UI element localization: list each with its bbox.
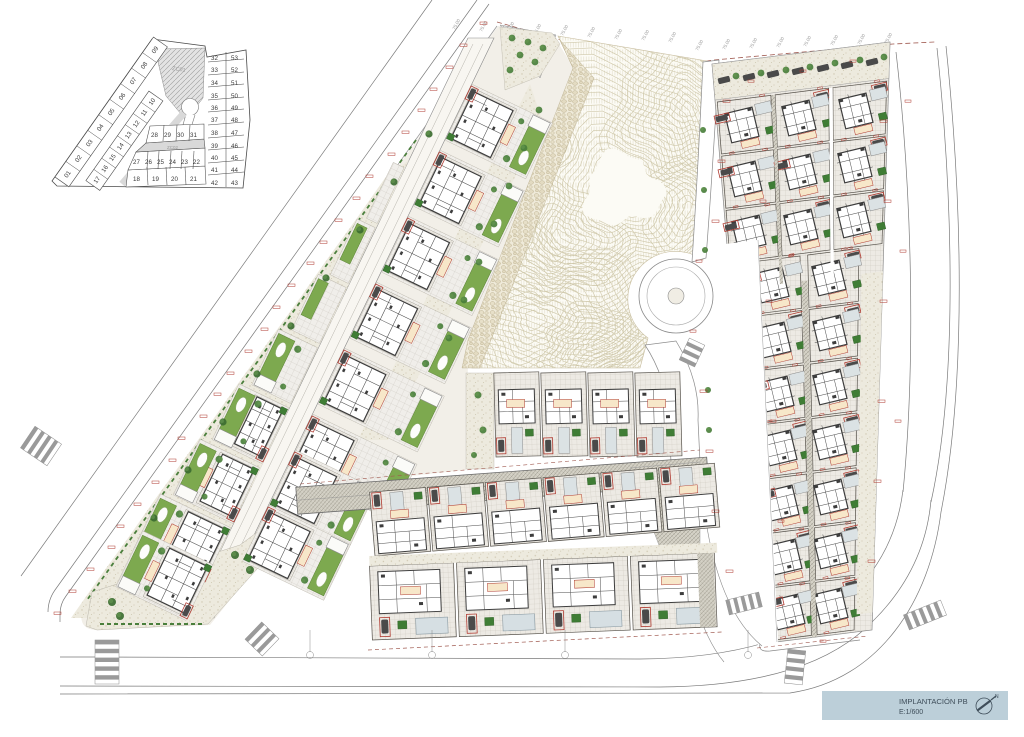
svg-text:ZC02: ZC02 — [167, 145, 179, 150]
svg-text:26: 26 — [145, 159, 152, 166]
svg-text:19: 19 — [152, 176, 159, 183]
svg-text:20: 20 — [171, 176, 178, 183]
svg-text:22: 22 — [193, 159, 200, 166]
svg-text:50: 50 — [231, 93, 238, 100]
svg-text:52: 52 — [231, 67, 238, 74]
svg-text:25: 25 — [157, 159, 164, 166]
svg-text:39: 39 — [211, 143, 218, 150]
svg-text:37: 37 — [211, 117, 218, 124]
svg-text:21: 21 — [190, 176, 197, 183]
svg-text:27: 27 — [133, 159, 140, 166]
svg-text:29: 29 — [164, 132, 171, 139]
svg-text:36: 36 — [211, 105, 218, 112]
svg-text:47: 47 — [231, 130, 238, 137]
svg-text:45: 45 — [231, 155, 238, 162]
svg-text:18: 18 — [133, 176, 140, 183]
svg-text:23: 23 — [181, 159, 188, 166]
svg-text:IMPLANTACIÓN PB: IMPLANTACIÓN PB — [899, 697, 968, 706]
svg-text:51: 51 — [231, 80, 238, 87]
svg-text:43: 43 — [231, 180, 238, 187]
svg-text:34: 34 — [211, 80, 218, 87]
svg-text:28: 28 — [151, 132, 158, 139]
svg-text:53: 53 — [231, 55, 238, 62]
svg-text:E:1/600: E:1/600 — [899, 709, 923, 716]
svg-text:41: 41 — [211, 167, 218, 174]
svg-text:49: 49 — [231, 105, 238, 112]
svg-text:48: 48 — [231, 117, 238, 124]
svg-text:44: 44 — [231, 167, 238, 174]
svg-text:N: N — [995, 694, 999, 700]
svg-text:40: 40 — [211, 155, 218, 162]
svg-text:32: 32 — [211, 55, 218, 62]
svg-text:33: 33 — [211, 67, 218, 74]
svg-text:30: 30 — [177, 132, 184, 139]
svg-text:46: 46 — [231, 143, 238, 150]
svg-text:42: 42 — [211, 180, 218, 187]
svg-text:24: 24 — [169, 159, 176, 166]
svg-text:31: 31 — [190, 132, 197, 139]
svg-text:35: 35 — [211, 93, 218, 100]
svg-text:38: 38 — [211, 130, 218, 137]
